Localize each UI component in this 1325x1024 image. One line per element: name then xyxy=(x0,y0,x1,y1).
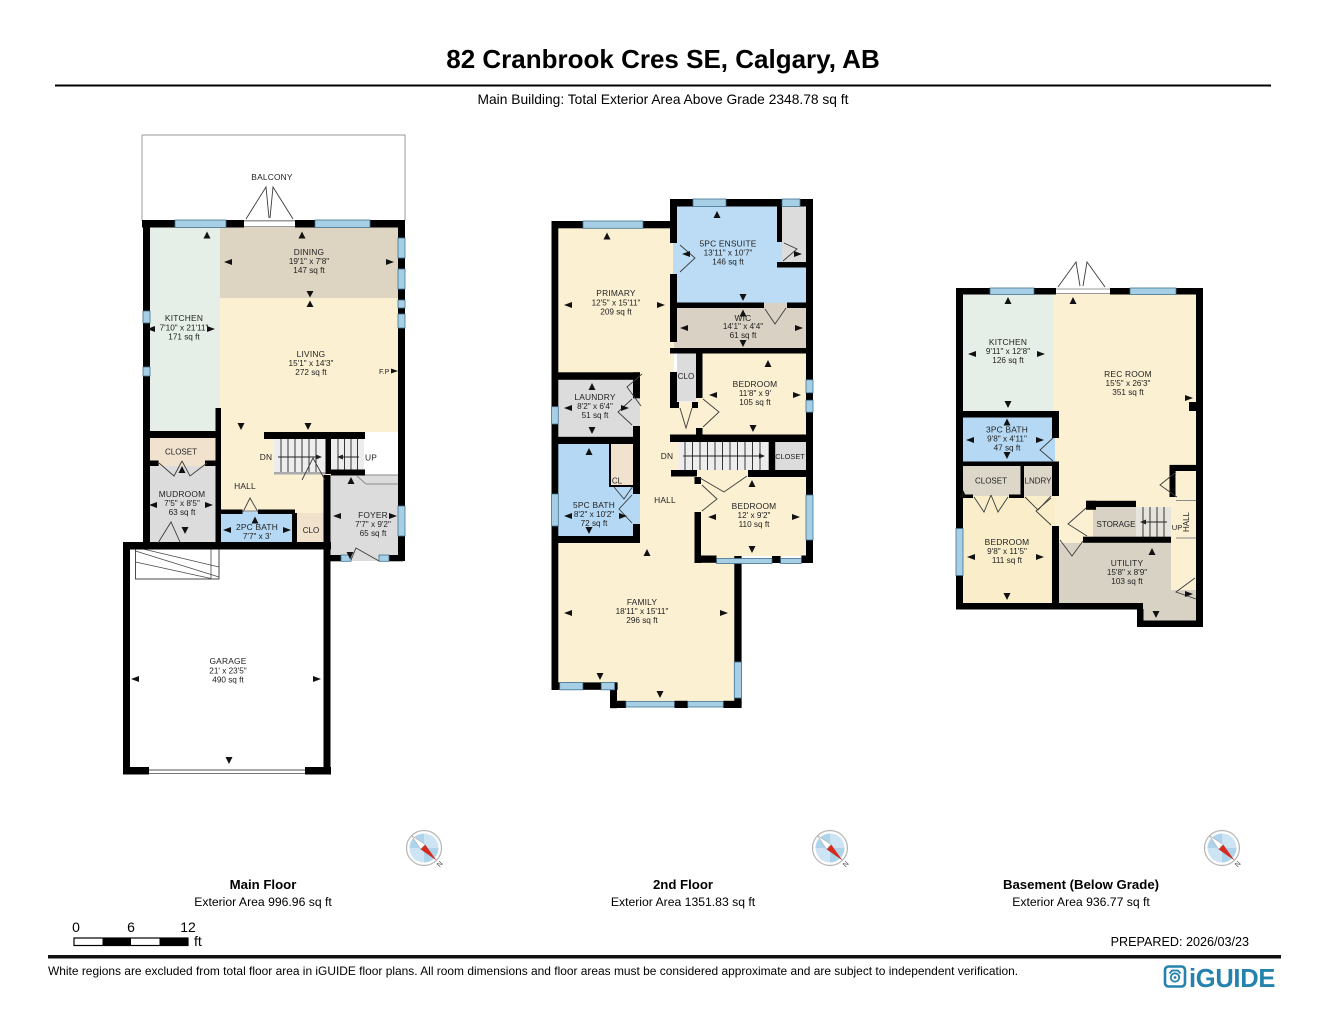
svg-text:LIVING: LIVING xyxy=(297,349,326,359)
svg-text:STORAGE: STORAGE xyxy=(1097,520,1136,529)
svg-text:LAUNDRY: LAUNDRY xyxy=(574,392,615,402)
svg-text:12'5" x 15'11": 12'5" x 15'11" xyxy=(592,299,641,308)
svg-text:5PC ENSUITE: 5PC ENSUITE xyxy=(699,239,756,249)
svg-text:490 sq ft: 490 sq ft xyxy=(212,676,244,685)
svg-text:3PC BATH: 3PC BATH xyxy=(986,425,1028,435)
svg-text:5PC BATH: 5PC BATH xyxy=(573,500,615,510)
svg-text:iGUIDE: iGUIDE xyxy=(1189,965,1275,993)
svg-text:13'11" x 10'7": 13'11" x 10'7" xyxy=(704,249,753,258)
svg-text:KITCHEN: KITCHEN xyxy=(989,337,1027,347)
svg-text:UP: UP xyxy=(1172,523,1183,532)
svg-text:CLO: CLO xyxy=(303,526,319,535)
svg-text:KITCHEN: KITCHEN xyxy=(165,313,203,323)
svg-text:15'5" x 26'3": 15'5" x 26'3" xyxy=(1106,379,1151,388)
svg-text:DINING: DINING xyxy=(294,247,325,257)
svg-text:DN: DN xyxy=(260,452,273,462)
svg-text:171 sq ft: 171 sq ft xyxy=(168,333,200,342)
svg-text:61 sq ft: 61 sq ft xyxy=(730,331,758,340)
svg-text:110 sq ft: 110 sq ft xyxy=(739,520,771,529)
svg-text:CLOSET: CLOSET xyxy=(165,448,197,457)
svg-text:Basement (Below Grade): Basement (Below Grade) xyxy=(1003,877,1159,892)
svg-text:BEDROOM: BEDROOM xyxy=(985,537,1030,547)
svg-text:63 sq ft: 63 sq ft xyxy=(169,508,197,517)
svg-text:2nd Floor: 2nd Floor xyxy=(653,877,713,892)
svg-text:BEDROOM: BEDROOM xyxy=(733,379,778,389)
svg-text:9'8" x 11'5": 9'8" x 11'5" xyxy=(987,547,1027,556)
svg-text:ft: ft xyxy=(194,933,202,949)
svg-text:7'10" x 21'11": 7'10" x 21'11" xyxy=(160,324,209,333)
svg-text:PREPARED: 2026/03/23: PREPARED: 2026/03/23 xyxy=(1111,935,1249,949)
svg-text:111 sq ft: 111 sq ft xyxy=(992,556,1023,565)
svg-text:351 sq ft: 351 sq ft xyxy=(1112,388,1144,397)
svg-text:47 sq ft: 47 sq ft xyxy=(994,444,1022,453)
svg-text:GARAGE: GARAGE xyxy=(209,656,246,666)
svg-text:126 sq ft: 126 sq ft xyxy=(992,356,1024,365)
svg-text:8'2" x 10'2": 8'2" x 10'2" xyxy=(574,510,614,519)
svg-text:65 sq ft: 65 sq ft xyxy=(360,529,388,538)
svg-text:CLOSET: CLOSET xyxy=(975,477,1007,486)
svg-text:103 sq ft: 103 sq ft xyxy=(1111,577,1143,586)
svg-text:6: 6 xyxy=(127,919,135,935)
svg-text:LNDRY: LNDRY xyxy=(1025,477,1053,486)
svg-text:CLO: CLO xyxy=(678,372,694,381)
svg-text:Exterior Area 996.96 sq ft: Exterior Area 996.96 sq ft xyxy=(194,895,332,909)
svg-text:21' x 23'5": 21' x 23'5" xyxy=(209,667,247,676)
svg-text:UTILITY: UTILITY xyxy=(1111,558,1144,568)
svg-text:9'8" x 4'11": 9'8" x 4'11" xyxy=(987,435,1027,444)
svg-text:DN: DN xyxy=(661,451,674,461)
svg-text:105 sq ft: 105 sq ft xyxy=(739,398,771,407)
svg-text:12' x 9'2": 12' x 9'2" xyxy=(738,511,771,520)
svg-text:209 sq ft: 209 sq ft xyxy=(600,308,632,317)
svg-text:REC ROOM: REC ROOM xyxy=(1104,369,1152,379)
svg-text:PRIMARY: PRIMARY xyxy=(596,288,636,298)
svg-text:FAMILY: FAMILY xyxy=(627,597,658,607)
svg-text:14'1" x 4'4": 14'1" x 4'4" xyxy=(723,322,763,331)
svg-text:CL: CL xyxy=(612,477,623,486)
svg-text:82 Cranbrook Cres SE, Calgary,: 82 Cranbrook Cres SE, Calgary, AB xyxy=(446,44,879,74)
svg-text:18'11" x 15'11": 18'11" x 15'11" xyxy=(616,607,669,616)
svg-text:272 sq ft: 272 sq ft xyxy=(295,368,327,377)
svg-text:147 sq ft: 147 sq ft xyxy=(293,266,325,275)
svg-text:19'1" x 7'8": 19'1" x 7'8" xyxy=(289,257,329,266)
svg-text:296 sq ft: 296 sq ft xyxy=(626,616,658,625)
svg-text:7'5" x 8'5": 7'5" x 8'5" xyxy=(164,499,200,508)
svg-text:7'7" x 3': 7'7" x 3' xyxy=(243,532,272,541)
svg-text:Main Building: Total Exterior: Main Building: Total Exterior Area Above… xyxy=(478,92,849,107)
svg-text:0: 0 xyxy=(72,919,80,935)
svg-text:White regions are excluded fro: White regions are excluded from total fl… xyxy=(48,964,1018,978)
svg-text:15'1" x 14'3": 15'1" x 14'3" xyxy=(289,359,334,368)
svg-text:HALL: HALL xyxy=(234,481,256,491)
svg-text:MUDROOM: MUDROOM xyxy=(159,489,206,499)
svg-text:BEDROOM: BEDROOM xyxy=(732,501,777,511)
svg-text:7'7" x 9'2": 7'7" x 9'2" xyxy=(355,520,391,529)
svg-text:BALCONY: BALCONY xyxy=(251,172,293,182)
svg-text:F.P: F.P xyxy=(379,367,390,376)
svg-text:9'11" x 12'8": 9'11" x 12'8" xyxy=(986,347,1030,356)
svg-text:UP: UP xyxy=(365,453,377,463)
svg-text:51 sq ft: 51 sq ft xyxy=(582,411,610,420)
svg-text:HALL: HALL xyxy=(654,495,676,505)
svg-text:HALL: HALL xyxy=(1182,511,1191,532)
svg-text:Exterior Area 1351.83 sq ft: Exterior Area 1351.83 sq ft xyxy=(611,895,756,909)
svg-text:11'8" x 9': 11'8" x 9' xyxy=(739,389,772,398)
svg-text:CLOSET: CLOSET xyxy=(775,452,805,461)
svg-text:Exterior Area 936.77 sq ft: Exterior Area 936.77 sq ft xyxy=(1012,895,1150,909)
svg-text:146 sq ft: 146 sq ft xyxy=(712,258,744,267)
svg-text:72 sq ft: 72 sq ft xyxy=(581,519,609,528)
svg-text:Main Floor: Main Floor xyxy=(230,877,297,892)
svg-text:8'2" x 6'4": 8'2" x 6'4" xyxy=(577,402,613,411)
svg-text:15'8" x 8'9": 15'8" x 8'9" xyxy=(1107,568,1147,577)
svg-text:FOYER: FOYER xyxy=(358,510,388,520)
